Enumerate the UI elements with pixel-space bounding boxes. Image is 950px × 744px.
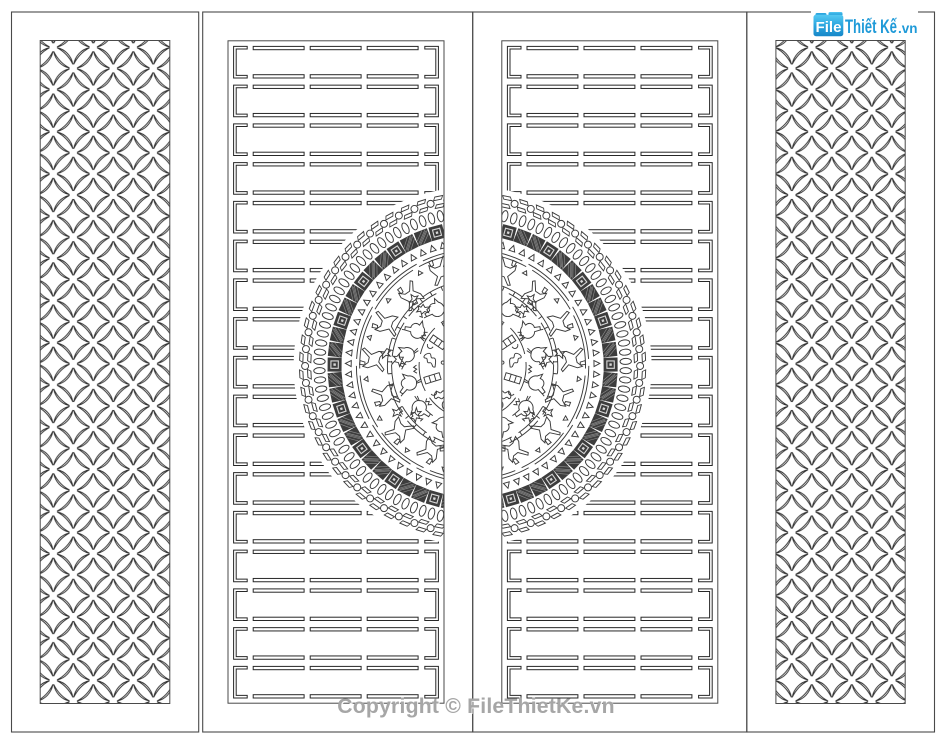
svg-text:Thiết Kế: Thiết Kế [845, 17, 897, 38]
svg-text:.vn: .vn [898, 21, 918, 36]
svg-text:File: File [816, 20, 842, 36]
